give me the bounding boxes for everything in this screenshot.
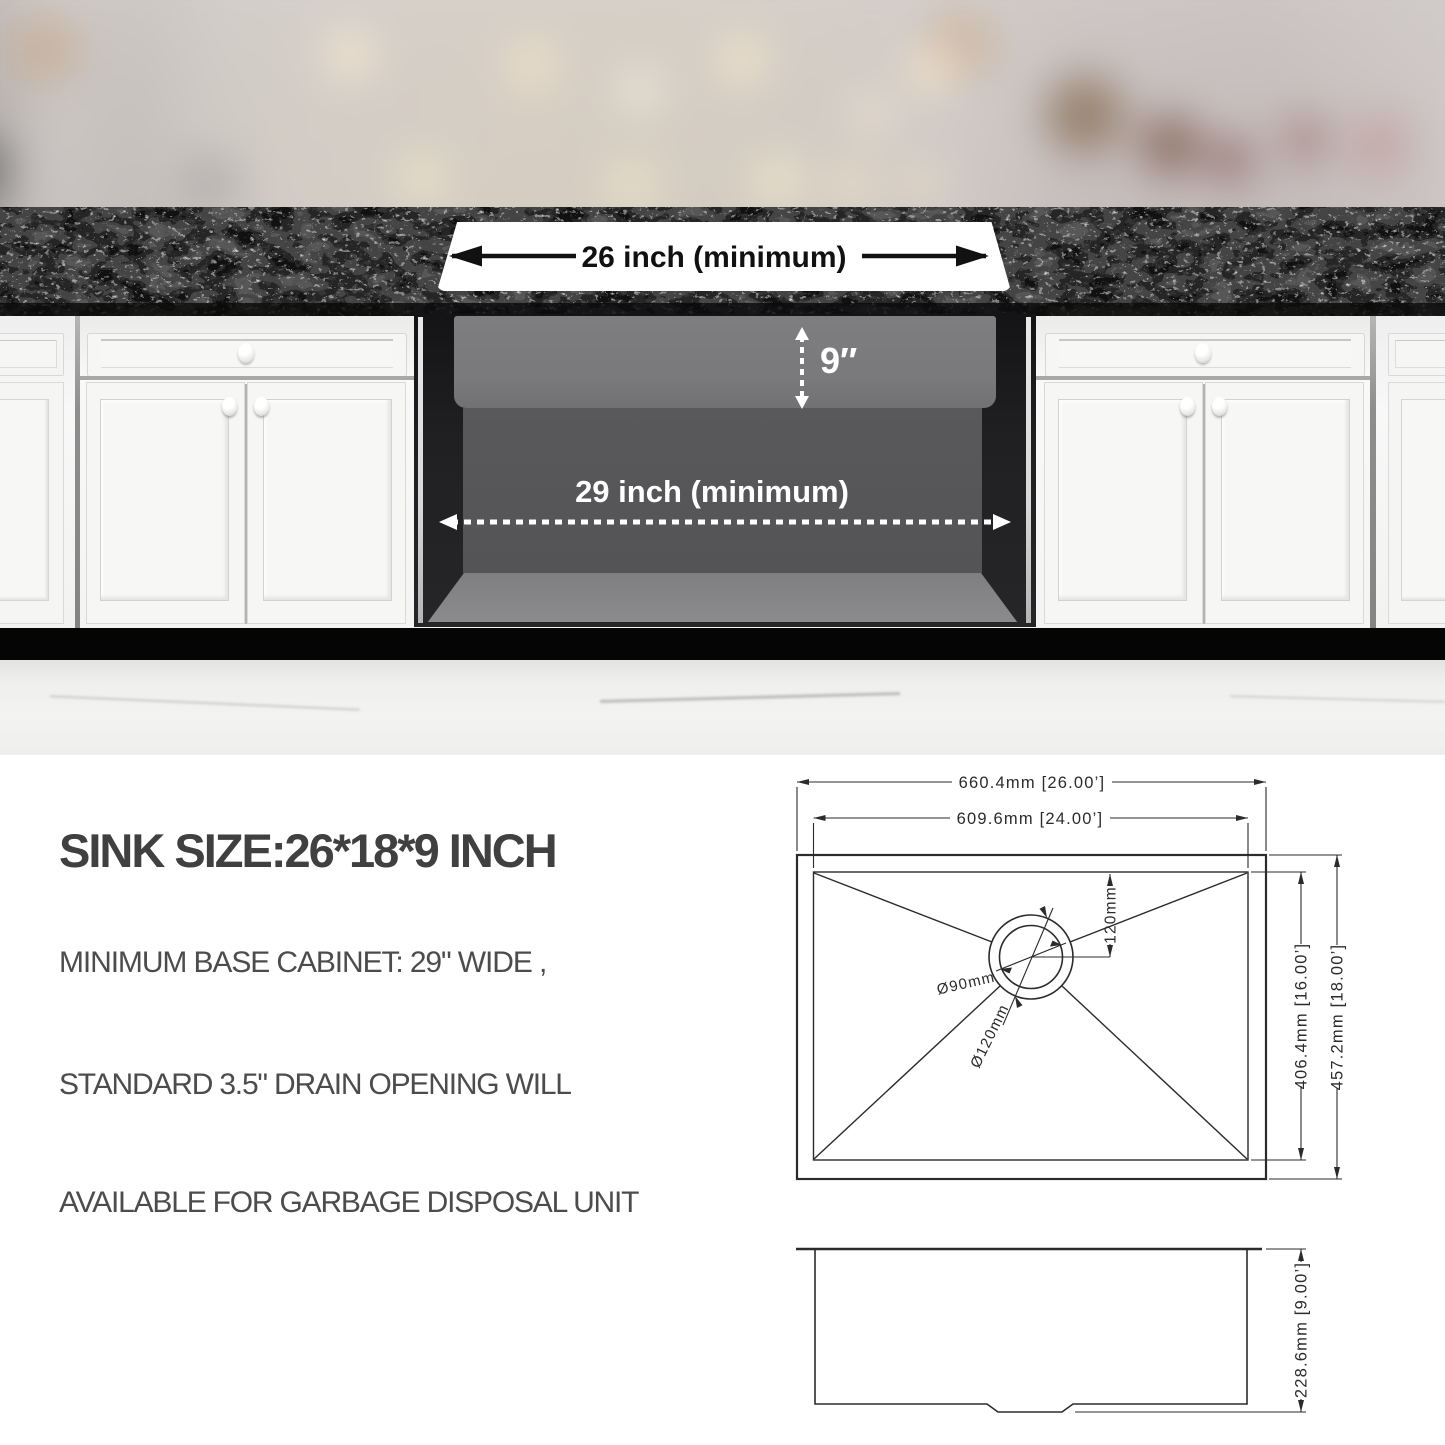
svg-text:228.6mm [9.00’]: 228.6mm [9.00’] [1293, 1262, 1311, 1398]
svg-text:609.6mm [24.00’]: 609.6mm [24.00’] [957, 810, 1104, 828]
svg-text:Ø120mm: Ø120mm [967, 1001, 1012, 1070]
svg-text:120mm: 120mm [1103, 886, 1120, 944]
svg-text:406.4mm [16.00’]: 406.4mm [16.00’] [1293, 943, 1311, 1090]
svg-text:Ø90mm: Ø90mm [935, 969, 997, 999]
svg-text:457.2mm [18.00’]: 457.2mm [18.00’] [1329, 944, 1347, 1091]
svg-text:660.4mm [26.00’]: 660.4mm [26.00’] [959, 774, 1106, 792]
